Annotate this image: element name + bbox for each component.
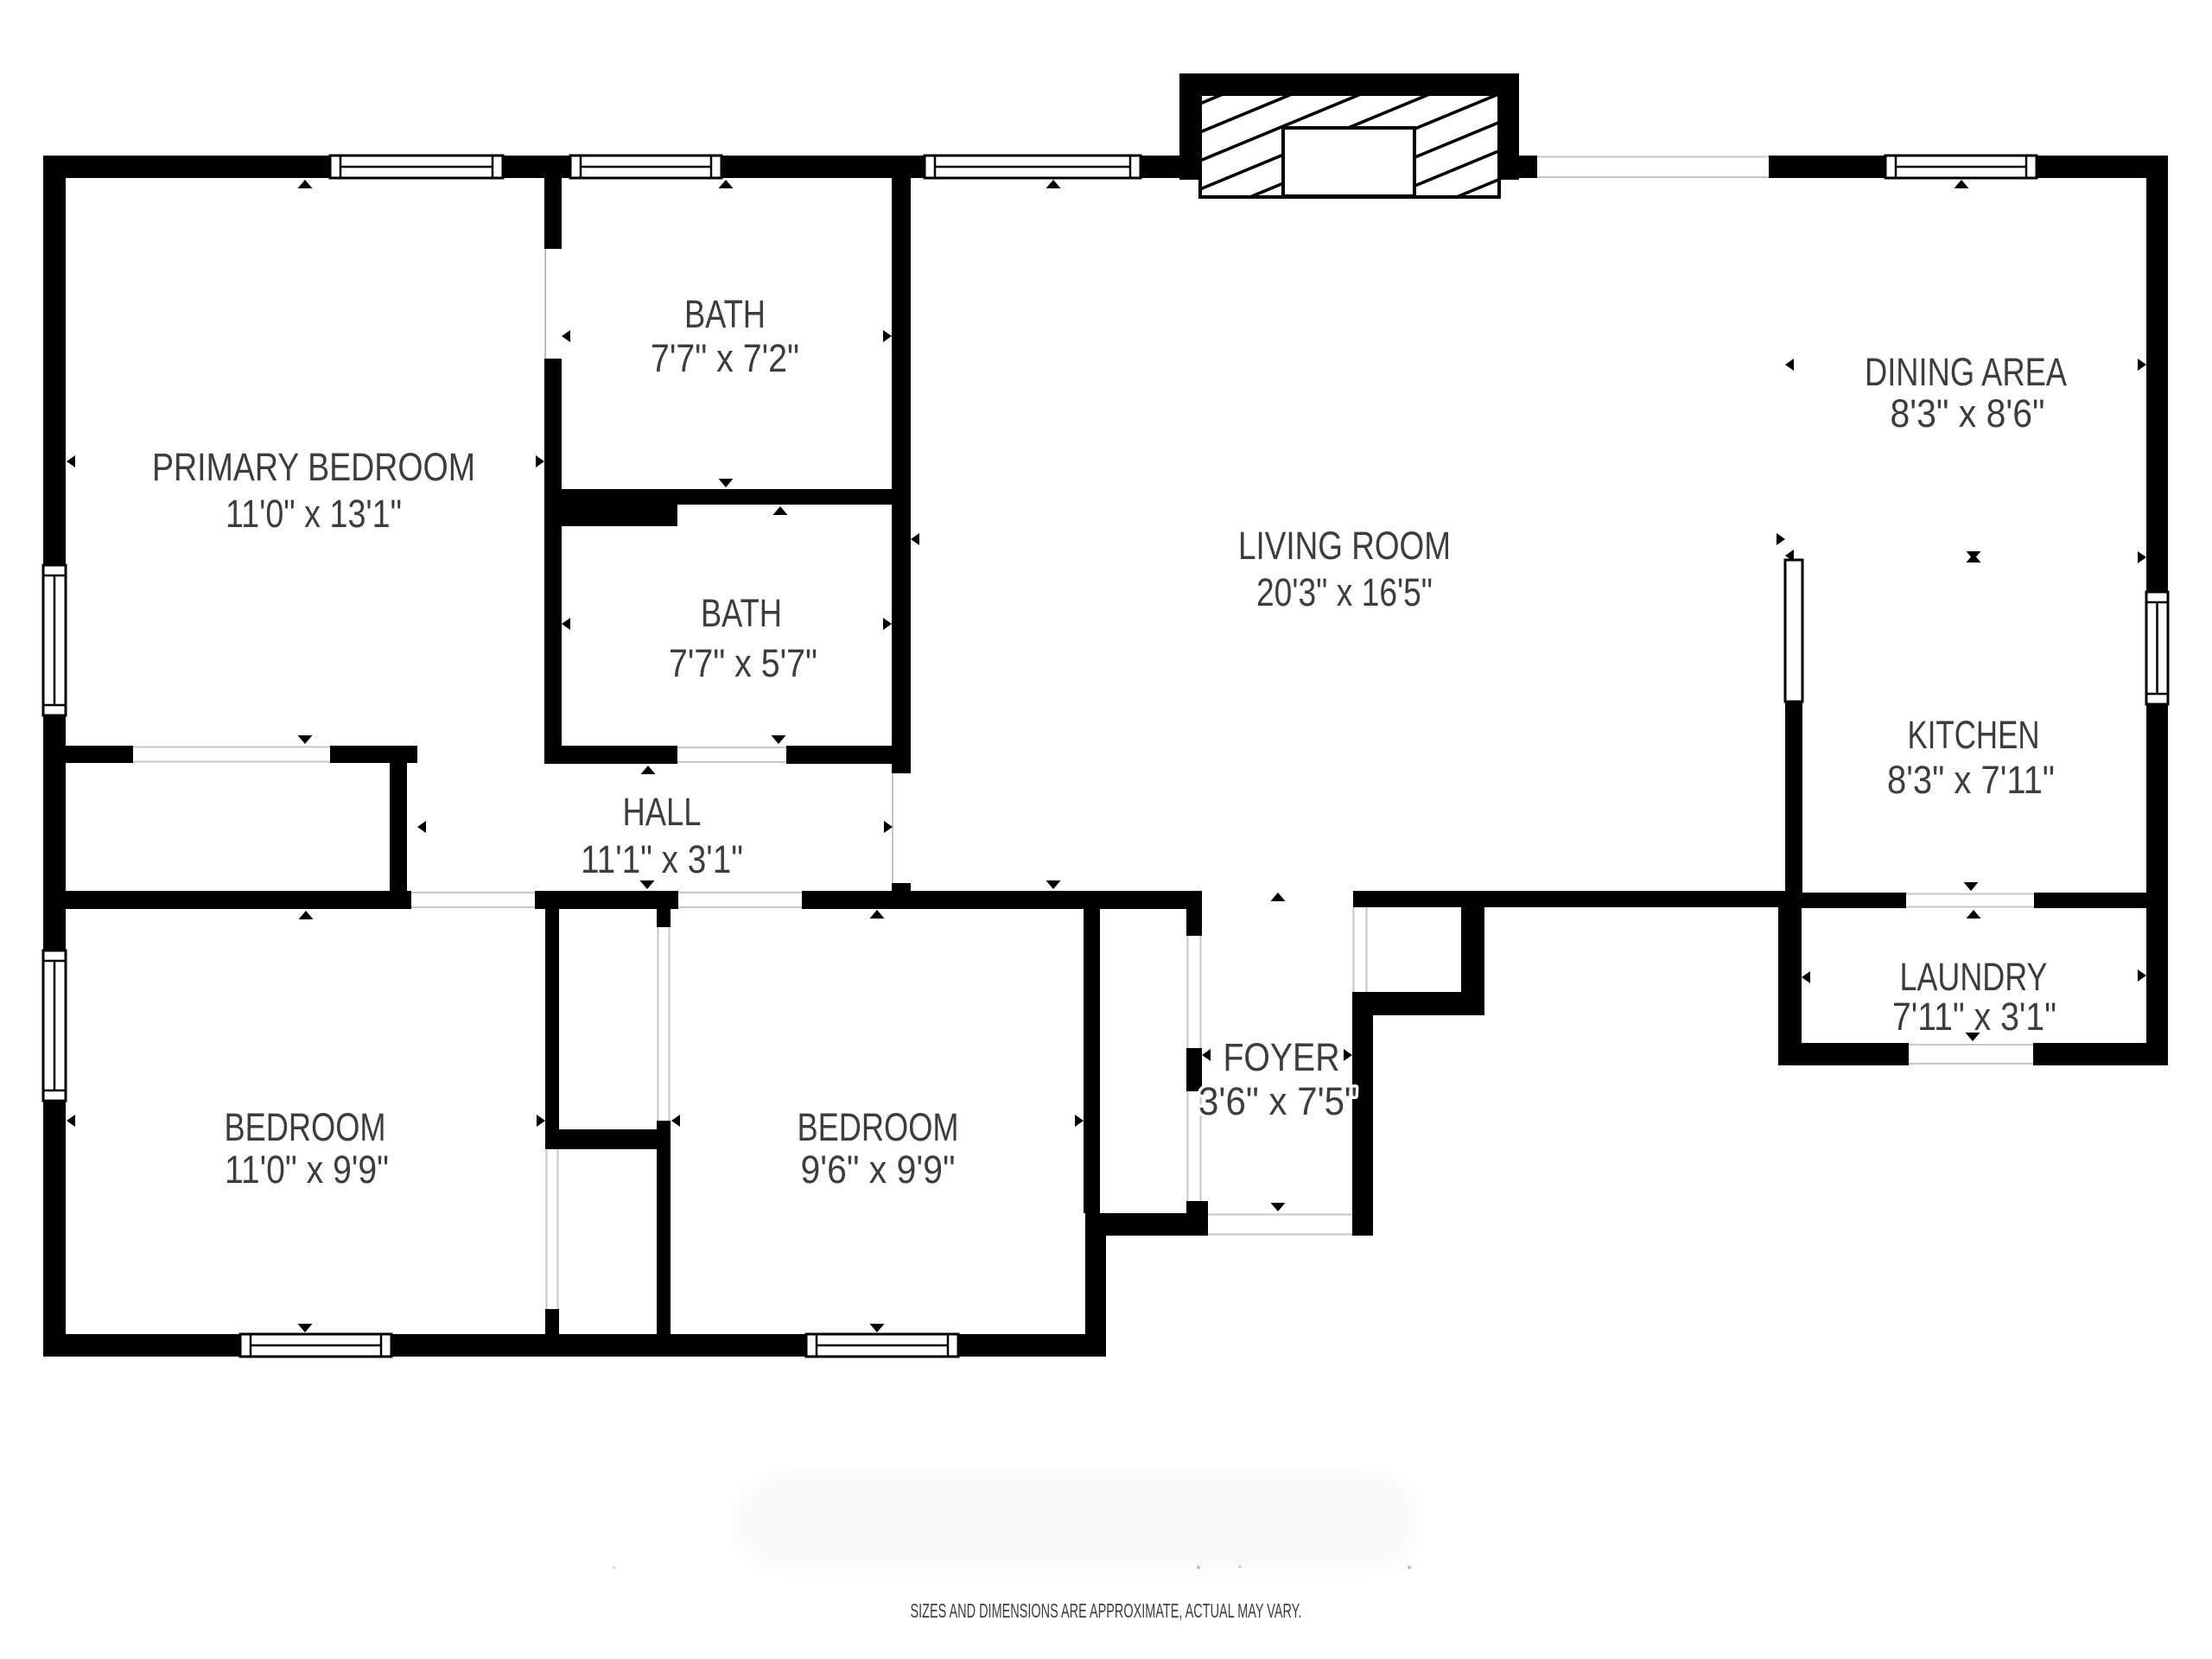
svg-text:KITCHEN: KITCHEN <box>1908 713 2040 757</box>
svg-text:9'6" x 9'9": 9'6" x 9'9" <box>801 1147 956 1192</box>
svg-text:SIZES AND DIMENSIONS ARE APPRO: SIZES AND DIMENSIONS ARE APPROXIMATE, AC… <box>911 1599 1302 1622</box>
svg-text:20'3" x 16'5": 20'3" x 16'5" <box>1256 570 1433 614</box>
svg-text:PRIMARY BEDROOM: PRIMARY BEDROOM <box>152 445 475 489</box>
svg-text:8'3" x 8'6": 8'3" x 8'6" <box>1891 391 2045 435</box>
svg-text:DINING AREA: DINING AREA <box>1865 350 2067 394</box>
svg-text:7'7" x 7'2": 7'7" x 7'2" <box>651 336 799 380</box>
svg-text:11'0" x 13'1": 11'0" x 13'1" <box>226 492 402 536</box>
svg-text:BATH: BATH <box>701 591 782 635</box>
svg-text:BATH: BATH <box>684 292 766 336</box>
svg-text:LAUNDRY: LAUNDRY <box>1900 955 2048 999</box>
svg-text:HALL: HALL <box>623 790 702 834</box>
svg-text:FOYER: FOYER <box>1224 1035 1340 1079</box>
svg-text:BEDROOM: BEDROOM <box>798 1105 959 1149</box>
svg-text:11'1" x 3'1": 11'1" x 3'1" <box>581 837 743 881</box>
svg-text:7'7" x 5'7": 7'7" x 5'7" <box>669 641 817 685</box>
svg-text:BEDROOM: BEDROOM <box>225 1105 386 1149</box>
svg-text:3'6" x 7'5": 3'6" x 7'5" <box>1198 1079 1357 1123</box>
svg-text:7'11" x 3'1": 7'11" x 3'1" <box>1892 995 2056 1039</box>
svg-text:8'3" x 7'11": 8'3" x 7'11" <box>1887 758 2055 802</box>
svg-text:11'0" x 9'9": 11'0" x 9'9" <box>225 1147 389 1192</box>
svg-text:LIVING ROOM: LIVING ROOM <box>1238 524 1451 568</box>
